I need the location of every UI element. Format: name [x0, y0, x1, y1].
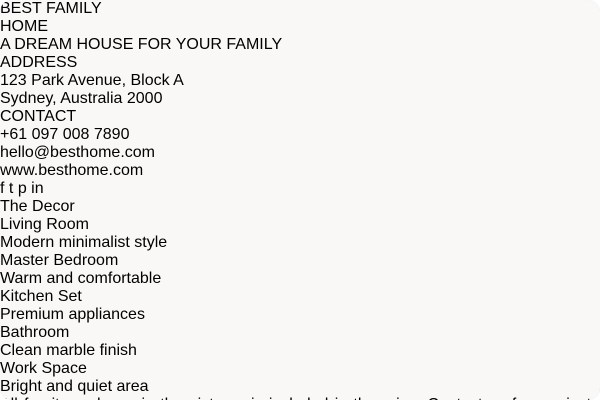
band-contact-col: CONTACT +61 097 008 7890 hello@besthome.… [0, 108, 600, 180]
band-line-text: 123 Park Avenue, Block A [0, 72, 184, 89]
vertical-social-icons: f t p in [0, 180, 600, 198]
decor-item: Work SpaceBright and quiet area [0, 360, 600, 396]
linkedin-icon: in [31, 180, 43, 197]
decor-item-title: Bathroom [0, 324, 600, 342]
decor-item-desc: Clean marble finish [0, 342, 600, 360]
headline-line1: BEST FAMILY [0, 0, 600, 18]
right-title-column: BEST FAMILY HOME A DREAM HOUSE FOR YOUR … [0, 0, 600, 54]
decor-note: All furniture shown in the pictures is i… [0, 396, 600, 400]
band-col-title: ADDRESS [0, 54, 600, 72]
mockup-scene: Id Ps Ai PDF f t p in REAL ESTATE WE BUI… [0, 0, 600, 400]
decor-item-title: Kitchen Set [0, 288, 600, 306]
pinterest-icon: p [18, 180, 27, 197]
band-line-text: hello@besthome.com [0, 144, 155, 161]
band-line: Sydney, Australia 2000 [0, 90, 600, 108]
decor-item-desc: Warm and comfortable [0, 270, 600, 288]
band-line-text: www.besthome.com [0, 162, 143, 179]
band-line: +61 097 008 7890 [0, 126, 600, 144]
decor-item: BathroomClean marble finish [0, 324, 600, 360]
decor-item-desc: Bright and quiet area [0, 378, 600, 396]
decor-title: The Decor [0, 198, 600, 216]
band-line: www.besthome.com [0, 162, 600, 180]
flyer-right: BEST FAMILY HOME A DREAM HOUSE FOR YOUR … [0, 0, 600, 400]
decor-item-title: Work Space [0, 360, 600, 378]
headline-line2: HOME [0, 18, 600, 36]
band-col-title: CONTACT [0, 108, 600, 126]
decor-item: Master BedroomWarm and comfortable [0, 252, 600, 288]
band-line-text: Sydney, Australia 2000 [0, 90, 162, 107]
band-line: hello@besthome.com [0, 144, 600, 162]
band-line-text: +61 097 008 7890 [0, 126, 129, 143]
band-address-col: ADDRESS 123 Park Avenue, Block A Sydney,… [0, 54, 600, 108]
decor-item: Living RoomModern minimalist style [0, 216, 600, 252]
band-line: 123 Park Avenue, Block A [0, 72, 600, 90]
decor-item-title: Master Bedroom [0, 252, 600, 270]
contact-band: ADDRESS 123 Park Avenue, Block A Sydney,… [0, 54, 600, 180]
decor-item-title: Living Room [0, 216, 600, 234]
decor-item-desc: Premium appliances [0, 306, 600, 324]
decor-section: The Decor Living RoomModern minimalist s… [0, 198, 600, 400]
decor-item-desc: Modern minimalist style [0, 234, 600, 252]
twitter-icon: t [9, 180, 13, 197]
subtitle: A DREAM HOUSE FOR YOUR FAMILY [0, 36, 600, 54]
facebook-icon: f [0, 180, 4, 197]
decor-item: Kitchen SetPremium appliances [0, 288, 600, 324]
